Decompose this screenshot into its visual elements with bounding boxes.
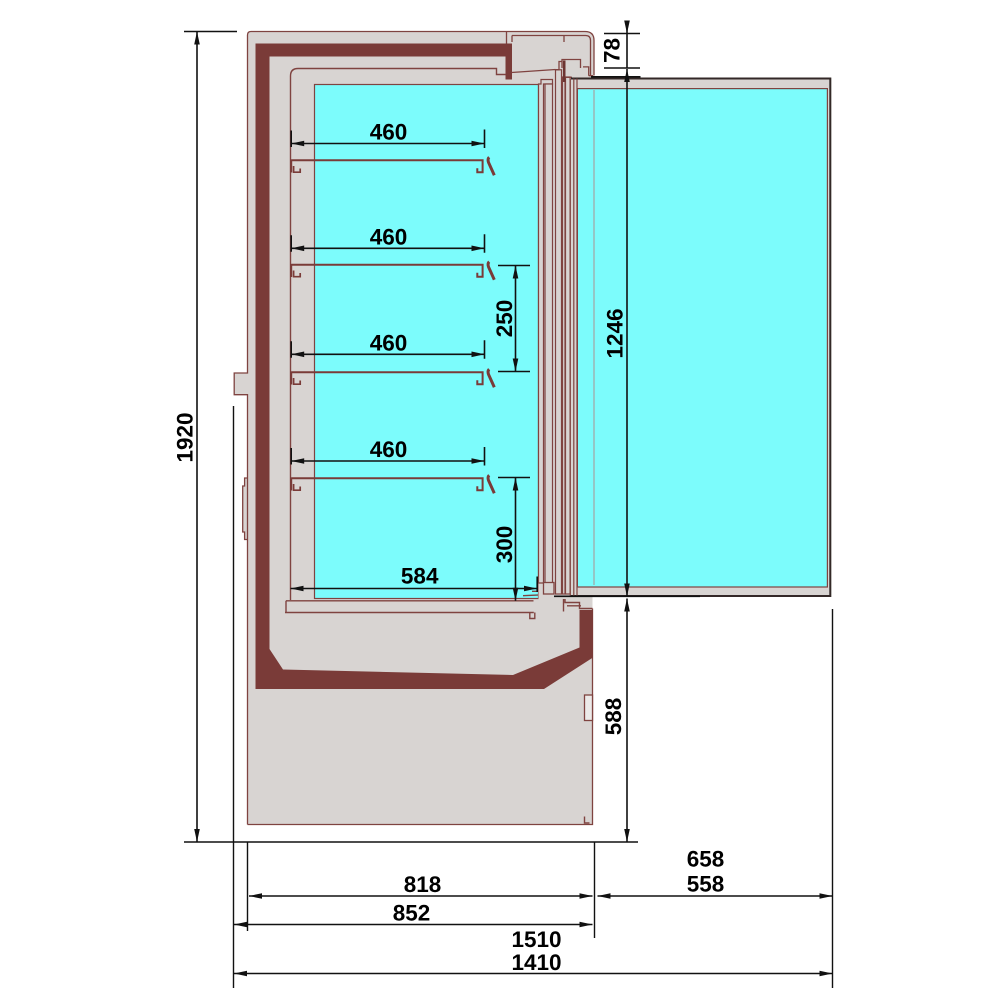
- svg-text:818: 818: [404, 872, 442, 897]
- svg-text:78: 78: [600, 38, 625, 63]
- svg-text:460: 460: [370, 437, 408, 462]
- svg-text:1510: 1510: [511, 927, 561, 952]
- svg-text:852: 852: [393, 901, 431, 926]
- svg-text:658: 658: [687, 847, 725, 872]
- svg-text:300: 300: [492, 526, 517, 564]
- svg-text:250: 250: [492, 300, 517, 338]
- svg-text:460: 460: [370, 120, 408, 145]
- svg-text:460: 460: [370, 330, 408, 355]
- svg-text:1246: 1246: [603, 308, 628, 358]
- svg-text:1920: 1920: [173, 412, 198, 462]
- svg-text:460: 460: [370, 224, 408, 249]
- svg-text:558: 558: [687, 872, 725, 897]
- svg-text:1410: 1410: [511, 950, 561, 975]
- svg-text:584: 584: [401, 564, 439, 589]
- svg-text:588: 588: [601, 698, 626, 736]
